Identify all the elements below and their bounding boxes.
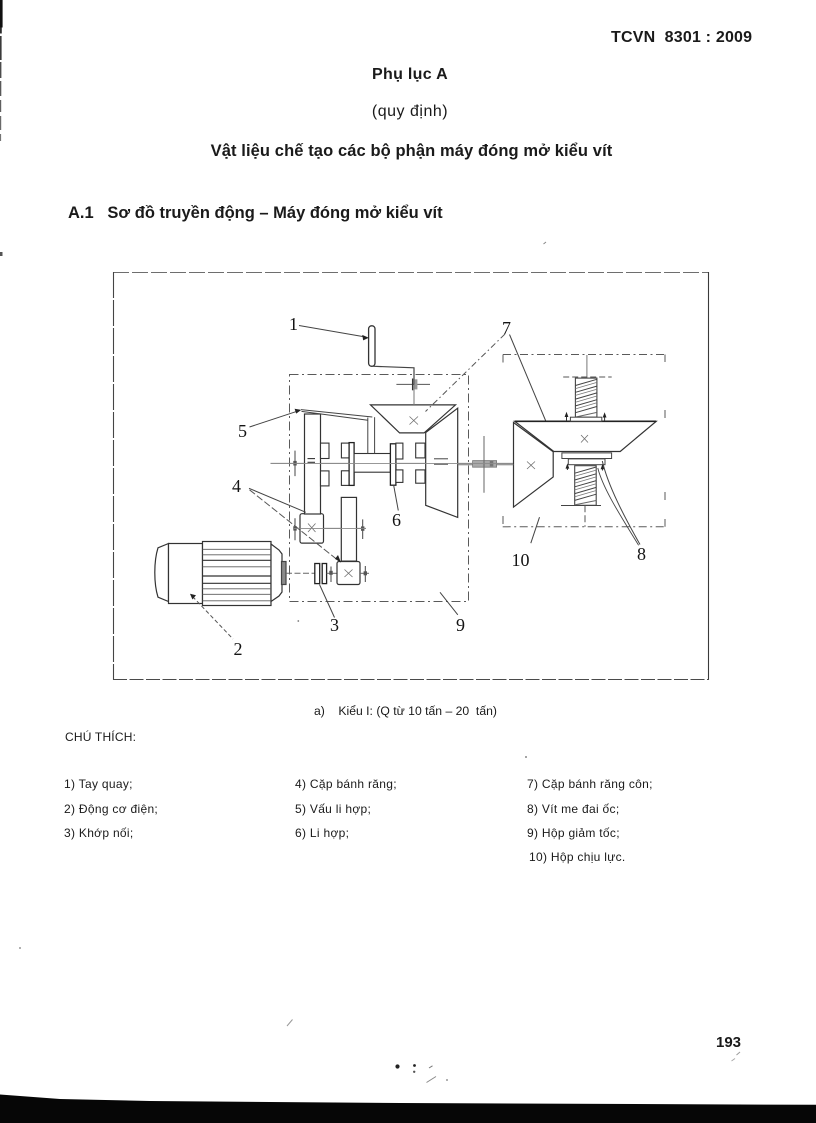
svg-text:8: 8 <box>637 544 646 564</box>
svg-text:1: 1 <box>289 314 298 334</box>
svg-text:4: 4 <box>232 476 241 496</box>
svg-text:2: 2 <box>234 639 243 659</box>
svg-text:5: 5 <box>238 421 247 441</box>
svg-text:7: 7 <box>502 318 511 338</box>
svg-text:9: 9 <box>456 615 465 635</box>
svg-text:3: 3 <box>330 615 339 635</box>
svg-text:10: 10 <box>512 550 530 570</box>
svg-text:6: 6 <box>392 510 401 530</box>
